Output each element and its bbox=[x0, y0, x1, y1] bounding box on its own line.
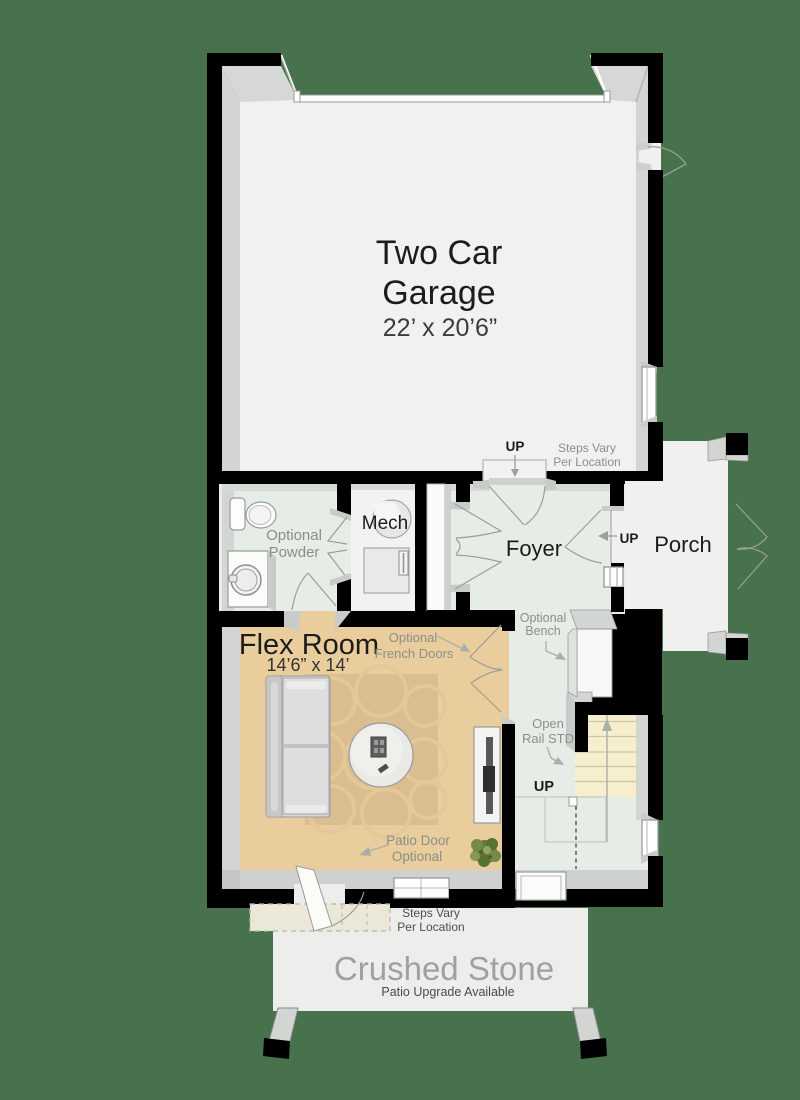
svg-text:Foyer: Foyer bbox=[506, 536, 562, 561]
svg-text:Patio Upgrade Available: Patio Upgrade Available bbox=[381, 985, 514, 999]
svg-text:22’ x 20’6”: 22’ x 20’6” bbox=[383, 314, 497, 342]
svg-text:Optional: Optional bbox=[389, 630, 438, 645]
svg-text:Optional: Optional bbox=[392, 849, 442, 864]
svg-text:Per Location: Per Location bbox=[553, 455, 620, 469]
svg-text:UP: UP bbox=[534, 779, 554, 795]
svg-text:Bench: Bench bbox=[525, 624, 560, 638]
svg-text:Steps Vary: Steps Vary bbox=[558, 441, 616, 455]
svg-text:Garage: Garage bbox=[382, 274, 495, 312]
svg-text:Powder: Powder bbox=[269, 544, 320, 561]
svg-text:14’6” x 14’: 14’6” x 14’ bbox=[266, 655, 349, 675]
svg-text:Porch: Porch bbox=[654, 532, 711, 557]
svg-text:Open: Open bbox=[532, 716, 564, 731]
svg-text:Rail STD: Rail STD bbox=[522, 731, 574, 746]
svg-text:UP: UP bbox=[620, 531, 639, 546]
svg-text:Crushed Stone: Crushed Stone bbox=[334, 950, 554, 987]
svg-text:Optional: Optional bbox=[266, 527, 322, 544]
svg-text:Two Car: Two Car bbox=[376, 234, 503, 272]
svg-text:Per Location: Per Location bbox=[397, 920, 464, 934]
svg-text:Steps Vary: Steps Vary bbox=[402, 906, 460, 920]
svg-text:Mech: Mech bbox=[362, 513, 408, 534]
svg-text:Optional: Optional bbox=[520, 611, 567, 625]
svg-text:UP: UP bbox=[506, 439, 525, 454]
svg-text:Patio Door: Patio Door bbox=[386, 833, 450, 848]
svg-text:French Doors: French Doors bbox=[375, 646, 454, 661]
